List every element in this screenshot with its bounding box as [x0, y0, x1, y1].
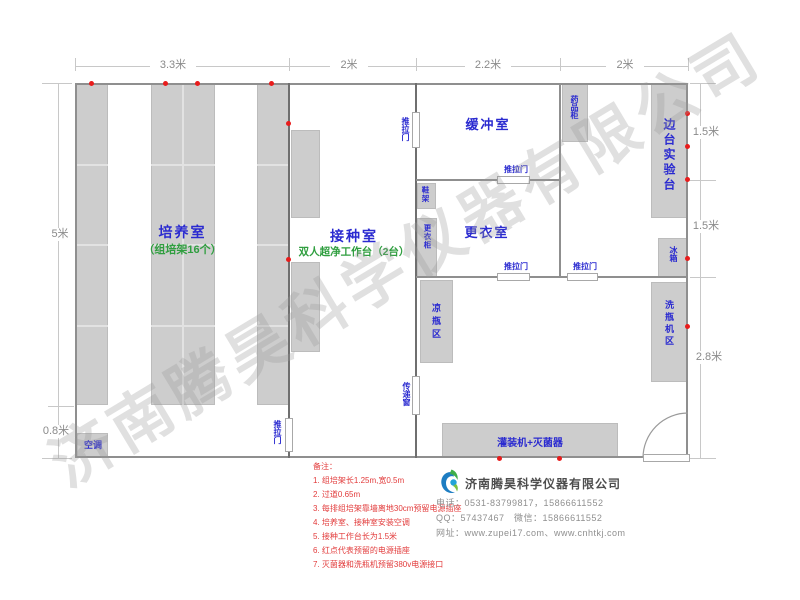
- sliding-door-symbol: [285, 418, 293, 452]
- company-phone: 电话：0531-83799817，15866611552: [436, 496, 603, 509]
- filling-sterilizer-label: 灌装机+灭菌器: [442, 434, 618, 449]
- power-socket-dot: [163, 81, 168, 86]
- wall-cultivation-inoculation: [288, 83, 290, 458]
- power-socket-dot: [685, 144, 690, 149]
- company-logo-icon: [438, 468, 463, 496]
- notes-title: 备注：: [313, 460, 337, 474]
- dim-tick: [690, 458, 716, 459]
- dim-tick: [690, 277, 716, 278]
- transfer-window-symbol: [412, 376, 420, 415]
- sliding-door-symbol: [412, 112, 420, 148]
- medicine-cabinet-label: 药品柜: [569, 95, 580, 119]
- dim-tick: [560, 58, 561, 71]
- dim-tick: [690, 180, 716, 181]
- company-name: 济南腾昊科学仪器有限公司: [465, 475, 621, 492]
- transfer-window-label: 传递窗: [401, 382, 412, 406]
- room-label-buffer: 缓冲室: [448, 114, 528, 133]
- bottle-cooling-label: 凉瓶区: [430, 303, 443, 342]
- dim-label-top-3: 2.2米: [465, 59, 511, 72]
- dim-tick: [48, 406, 74, 407]
- power-socket-dot: [89, 81, 94, 86]
- fridge-label: 冰箱: [668, 246, 679, 262]
- power-socket-dot: [497, 456, 502, 461]
- dim-label-top-2: 2米: [330, 59, 368, 72]
- room-label-cultivation: 培养室: [120, 222, 245, 242]
- dim-label-right-3: 2.8米: [687, 351, 731, 364]
- power-socket-dot: [195, 81, 200, 86]
- sliding-door-label: 推拉门: [400, 117, 411, 141]
- dim-label-left-1: 5米: [41, 228, 79, 241]
- power-socket-dot: [685, 177, 690, 182]
- note-item: 2. 过道0.65m: [313, 488, 360, 502]
- power-socket-dot: [685, 324, 690, 329]
- power-socket-dot: [557, 456, 562, 461]
- company-qq-wechat: QQ：57437467 微信：15866611552: [436, 511, 602, 524]
- note-item: 7. 灭菌器和洗瓶机预留380v电源接口: [313, 558, 443, 572]
- power-socket-dot: [286, 257, 291, 262]
- note-item: 4. 培养室、接种室安装空调: [313, 516, 410, 530]
- dim-tick: [289, 58, 290, 71]
- sliding-door-label: 推拉门: [272, 420, 283, 444]
- dim-tick: [416, 58, 417, 71]
- power-socket-dot: [685, 256, 690, 261]
- dim-line-right: [700, 83, 701, 458]
- sliding-door-label: 推拉门: [570, 261, 600, 272]
- company-website: 网址：www.zupei17.com、www.cnhtkj.com: [436, 526, 626, 539]
- room-sublabel-cultivation: （组培架16个）: [120, 241, 245, 257]
- power-socket-dot: [286, 121, 291, 126]
- note-item: 5. 接种工作台长为1.5米: [313, 530, 397, 544]
- entry-door-leaf: [643, 454, 690, 462]
- bottle-washer-label: 洗瓶机区: [663, 300, 676, 348]
- dim-tick: [42, 83, 72, 84]
- note-item: 1. 组培架长1.25m,宽0.5m: [313, 474, 404, 488]
- wall-dressing-bottomroom: [416, 276, 688, 278]
- floor-plan-canvas: 济南腾昊科学仪器有限公司 3.3米 2米 2.2米 2米 5米 0.8米 1.5…: [0, 0, 800, 600]
- shoe-rack-label: 鞋架: [420, 186, 431, 203]
- power-socket-dot: [269, 81, 274, 86]
- dim-label-right-2: 1.5米: [684, 220, 728, 233]
- dim-label-top-4: 2米: [606, 59, 644, 72]
- note-item: 6. 红点代表预留的电源插座: [313, 544, 410, 558]
- dim-label-top-1: 3.3米: [150, 59, 196, 72]
- dim-line-left: [58, 83, 59, 458]
- sliding-door-symbol: [497, 273, 530, 281]
- sliding-door-label: 推拉门: [501, 261, 531, 272]
- dim-tick: [75, 58, 76, 71]
- sliding-door-symbol: [567, 273, 598, 281]
